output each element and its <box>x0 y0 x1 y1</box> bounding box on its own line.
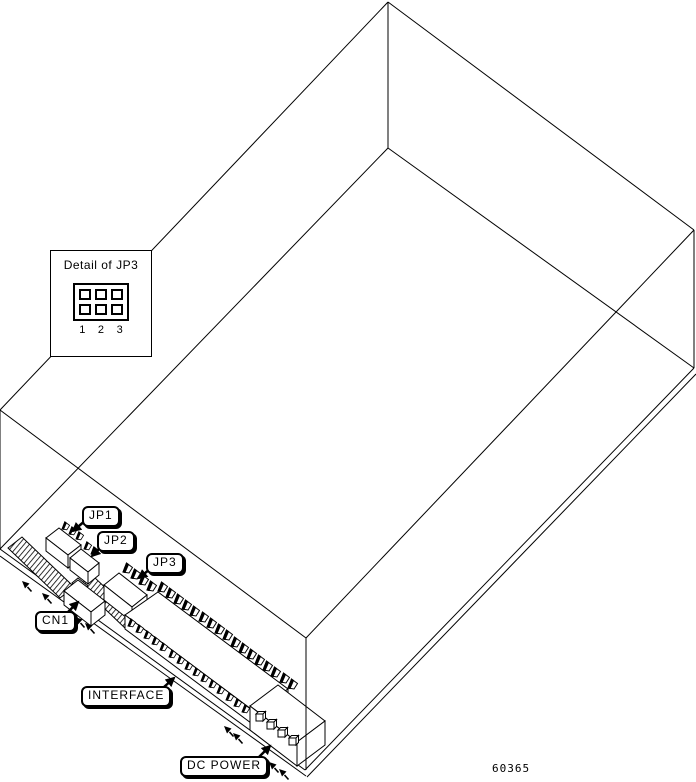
pin1-arrow-icon <box>233 733 243 744</box>
enclosure-front-edges <box>305 368 696 777</box>
pin-number-3: 3 <box>117 324 123 336</box>
figure-number: 60365 <box>492 762 530 775</box>
pin-number-2: 2 <box>98 324 104 336</box>
jumper-pin-pad <box>79 304 91 315</box>
pin1-arrow-icon <box>279 769 289 780</box>
pin1-arrow-icon <box>22 581 32 592</box>
jp3-jumper-block <box>73 283 129 321</box>
jumper-pin-pad <box>111 289 123 300</box>
callout-dc-power: DC POWER <box>180 756 268 777</box>
jumper-pin-numbers: 1 2 3 <box>73 324 129 336</box>
pin1-arrow-icon <box>224 726 234 737</box>
pin-number-1: 1 <box>79 324 85 336</box>
callout-jp2: JP2 <box>97 531 135 552</box>
callout-jp1: JP1 <box>82 506 120 527</box>
callout-interface: INTERFACE <box>81 686 171 707</box>
inset-title: Detail of JP3 <box>51 258 151 272</box>
callout-cn1: CN1 <box>35 611 76 632</box>
jumper-pin-pad <box>95 304 107 315</box>
enclosure-wireframe <box>0 2 694 776</box>
callout-jp3: JP3 <box>146 553 184 574</box>
pin1-arrow-icon <box>269 762 279 773</box>
jumper-pin-pad <box>111 304 123 315</box>
jp3-detail-inset: Detail of JP3 1 2 3 <box>50 250 152 357</box>
line-art <box>0 0 696 782</box>
pin1-arrow-icon <box>42 593 52 604</box>
jumper-pin-pad <box>95 289 107 300</box>
hardware-jumper-diagram: Detail of JP3 1 2 3 JP1 JP2 JP3 CN1 INTE… <box>0 0 696 782</box>
jumper-pin-pad <box>79 289 91 300</box>
